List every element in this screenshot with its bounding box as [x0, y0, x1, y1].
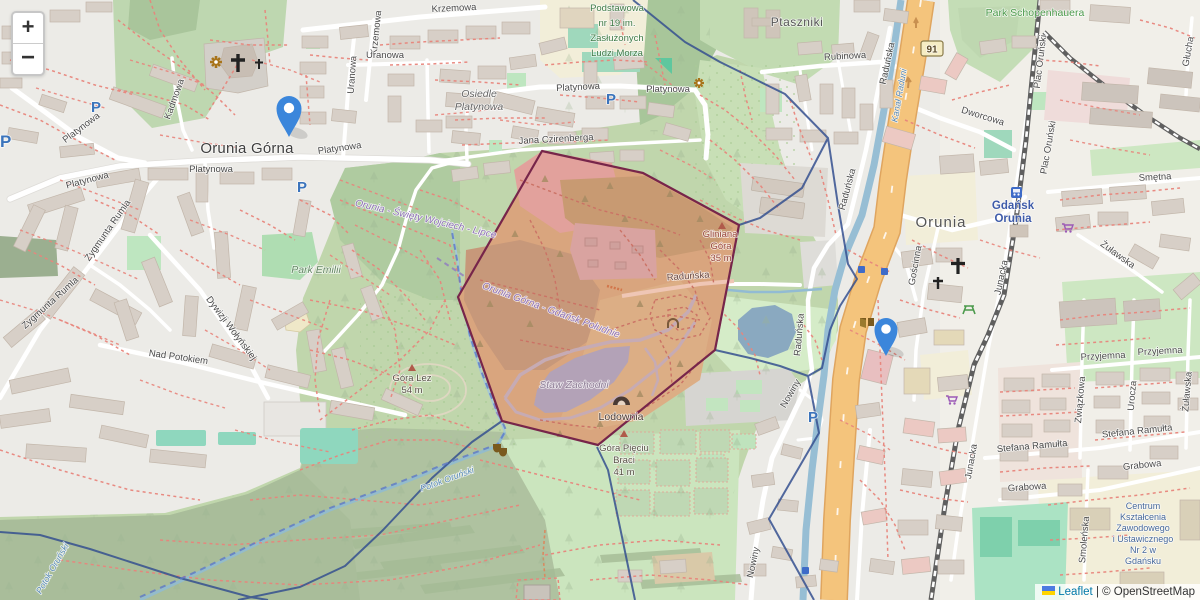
svg-text:41 m: 41 m	[613, 467, 634, 478]
svg-text:Rubinowa: Rubinowa	[824, 50, 867, 63]
svg-text:Gdańsk: Gdańsk	[992, 200, 1035, 212]
svg-text:Góra Pięciu: Góra Pięciu	[599, 443, 649, 454]
svg-text:P: P	[0, 132, 11, 151]
svg-text:Uranowa: Uranowa	[366, 50, 405, 61]
svg-text:Platynowa: Platynowa	[556, 81, 601, 94]
svg-text:Orunia: Orunia	[915, 214, 966, 231]
svg-text:Ludzi Morza: Ludzi Morza	[591, 48, 643, 59]
svg-text:Kształcenia: Kształcenia	[1120, 512, 1166, 522]
svg-text:nr 19 im.: nr 19 im.	[599, 18, 636, 29]
svg-text:i Ustawicznego: i Ustawicznego	[1113, 534, 1174, 544]
svg-text:91: 91	[926, 45, 938, 56]
svg-text:Braci: Braci	[613, 455, 635, 466]
svg-text:P: P	[808, 409, 818, 426]
svg-text:Nr 2 w: Nr 2 w	[1130, 545, 1157, 555]
svg-text:P: P	[606, 91, 616, 108]
svg-text:35 m: 35 m	[710, 253, 731, 264]
svg-text:Zasłużonych: Zasłużonych	[590, 33, 643, 44]
svg-text:Góra: Góra	[710, 241, 732, 252]
svg-text:Platynowa: Platynowa	[455, 101, 504, 113]
svg-text:Staw Zachodni: Staw Zachodni	[539, 379, 609, 391]
svg-text:Platynowa: Platynowa	[646, 84, 691, 95]
svg-text:Zawodowego: Zawodowego	[1116, 523, 1170, 533]
svg-text:Platynowa: Platynowa	[189, 164, 234, 175]
svg-text:Park Schopenhauera: Park Schopenhauera	[986, 7, 1085, 19]
svg-text:Góra Lez: Góra Lez	[392, 373, 431, 384]
svg-text:Orunia: Orunia	[994, 213, 1032, 225]
svg-text:Centrum: Centrum	[1126, 501, 1161, 511]
svg-text:Gdańsku: Gdańsku	[1125, 556, 1161, 566]
svg-text:54 m: 54 m	[401, 385, 422, 396]
svg-text:Park Emilii: Park Emilii	[291, 264, 341, 276]
svg-text:Ptaszniki: Ptaszniki	[771, 15, 824, 29]
svg-text:Podstawowa: Podstawowa	[590, 3, 645, 14]
svg-text:Lodownia: Lodownia	[599, 411, 644, 423]
svg-text:Gliniana: Gliniana	[703, 229, 739, 240]
svg-text:Orunia Górna: Orunia Górna	[200, 140, 294, 157]
svg-text:P: P	[297, 179, 307, 196]
svg-text:Smętna: Smętna	[1138, 171, 1172, 184]
svg-text:Osiedle: Osiedle	[461, 88, 497, 100]
